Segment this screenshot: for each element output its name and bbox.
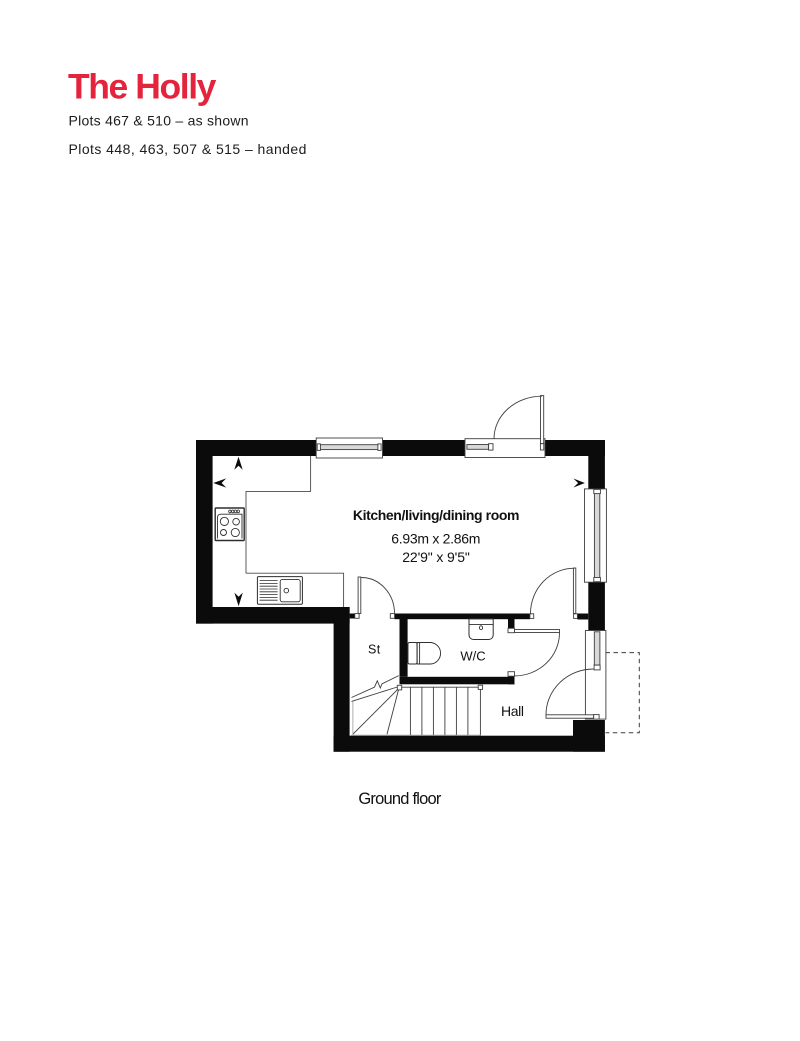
svg-text:Ground floor: Ground floor — [358, 790, 442, 808]
svg-text:St: St — [368, 643, 381, 657]
svg-text:Hall: Hall — [501, 703, 524, 719]
svg-text:The Holly: The Holly — [68, 67, 217, 107]
svg-text:Plots 448, 463, 507 & 515 – ha: Plots 448, 463, 507 & 515 – handed — [69, 141, 307, 157]
svg-text:W/C: W/C — [460, 649, 485, 664]
svg-text:6.93m x 2.86m: 6.93m x 2.86m — [391, 530, 480, 546]
svg-text:22'9" x 9'5": 22'9" x 9'5" — [402, 549, 470, 565]
svg-text:Plots 467 & 510 – as shown: Plots 467 & 510 – as shown — [69, 113, 249, 129]
svg-text:Kitchen/living/dining room: Kitchen/living/dining room — [353, 507, 519, 523]
